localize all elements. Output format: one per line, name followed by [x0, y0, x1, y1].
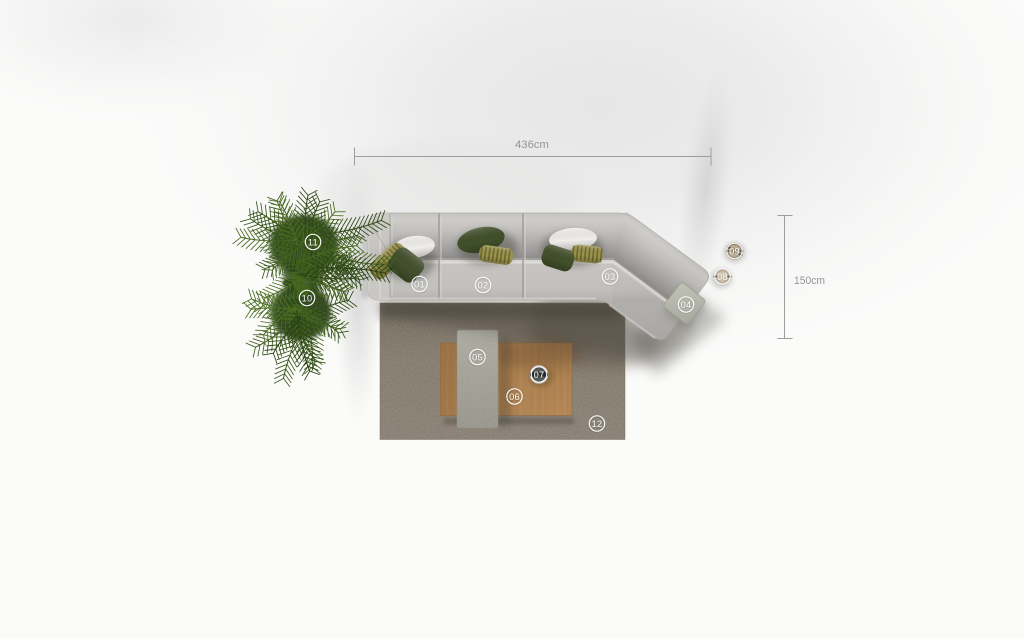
svg-text:09: 09: [729, 246, 740, 256]
svg-text:12: 12: [592, 419, 603, 429]
svg-text:150cm: 150cm: [794, 275, 825, 287]
svg-text:436cm: 436cm: [515, 139, 549, 151]
svg-text:05: 05: [472, 352, 483, 362]
svg-text:04: 04: [681, 300, 692, 310]
svg-text:11: 11: [308, 237, 318, 247]
svg-text:10: 10: [302, 293, 313, 303]
svg-text:06: 06: [509, 392, 520, 402]
svg-text:03: 03: [605, 272, 616, 282]
svg-text:08: 08: [717, 272, 728, 282]
svg-text:02: 02: [478, 280, 489, 290]
svg-text:01: 01: [414, 279, 425, 289]
svg-text:07: 07: [534, 370, 545, 380]
